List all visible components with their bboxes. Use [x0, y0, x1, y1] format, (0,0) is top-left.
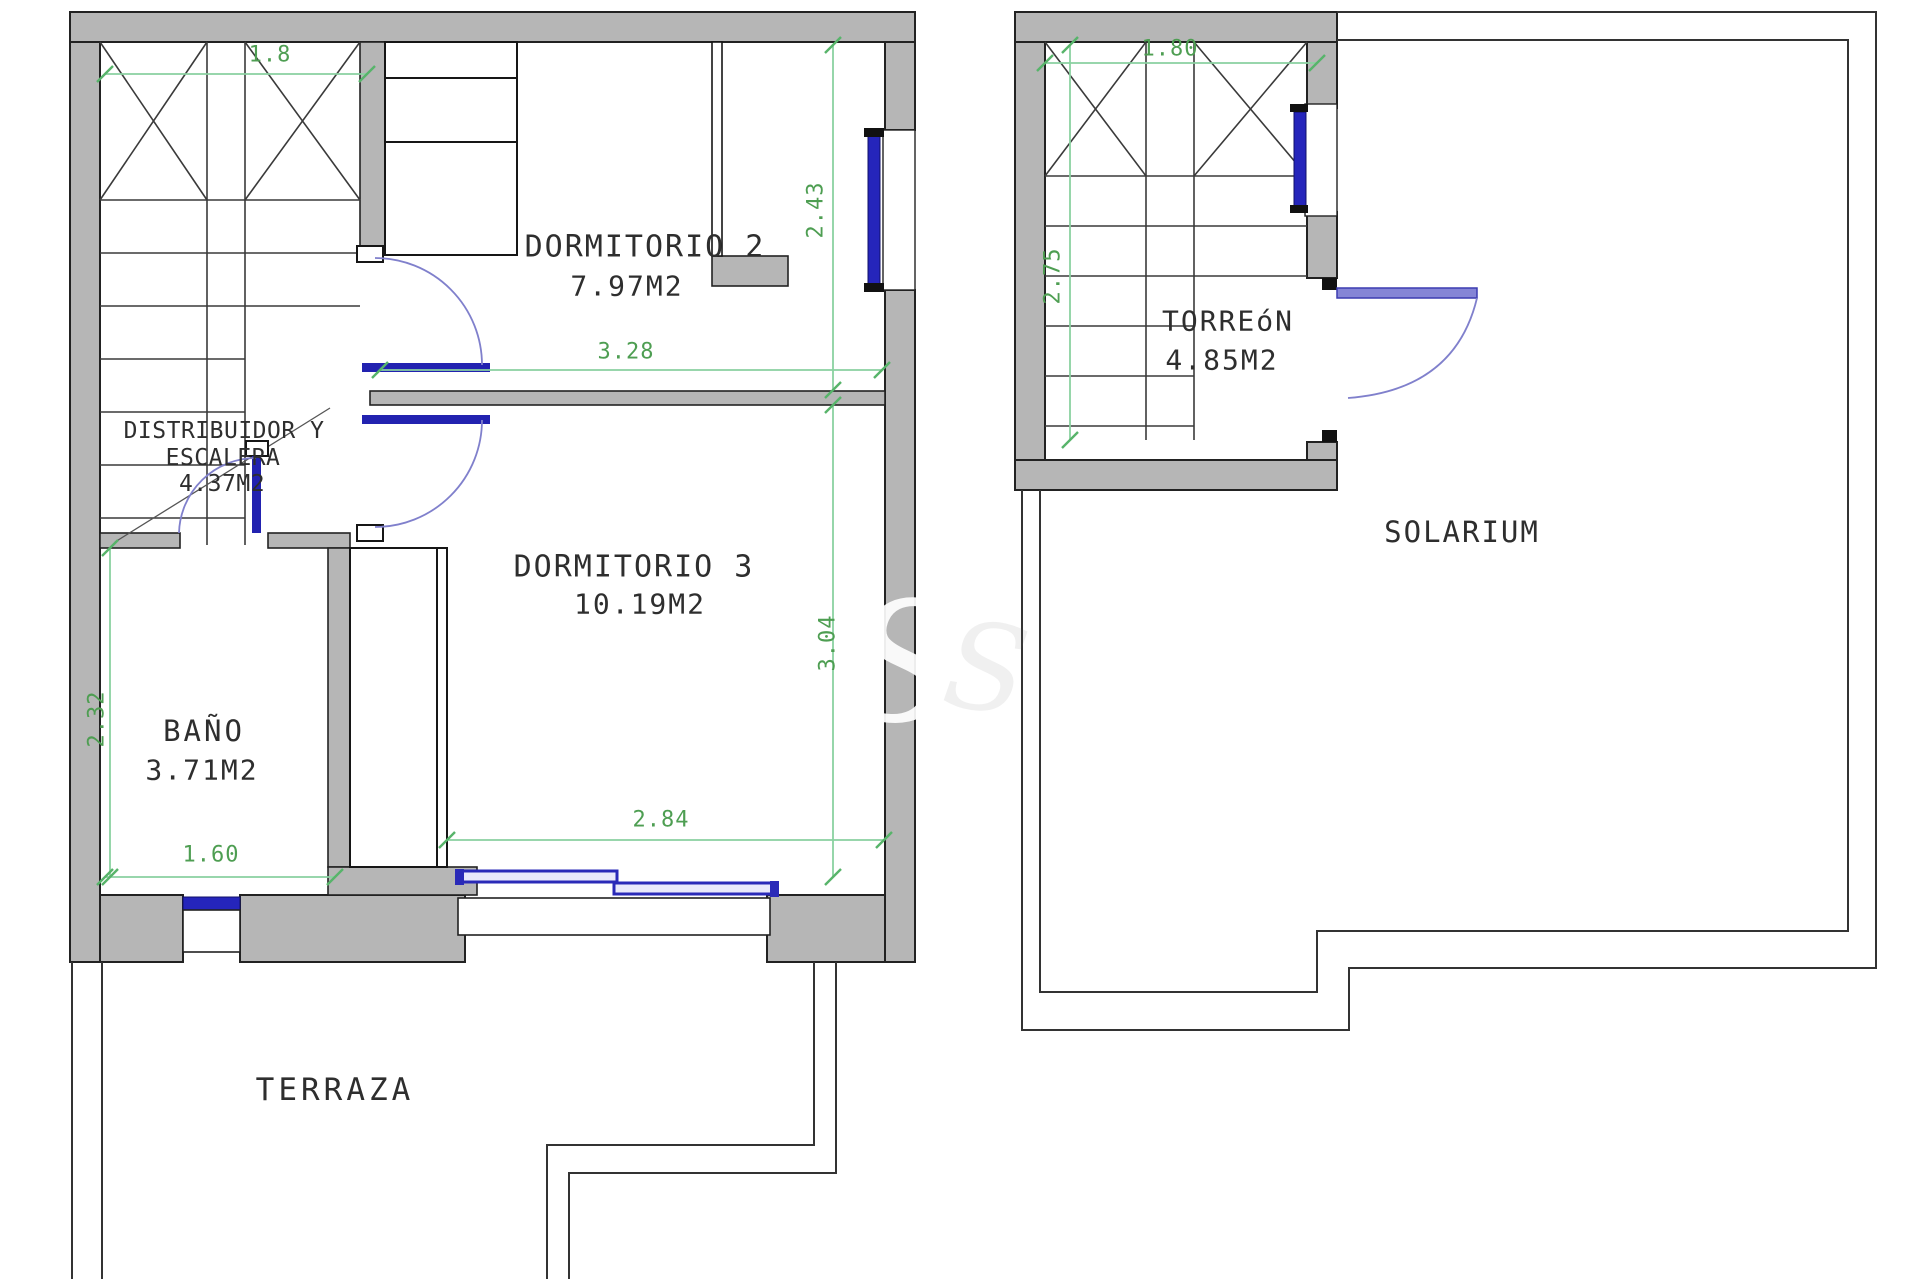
terraza-outline [72, 962, 836, 1279]
dim-value-stair-width-upper: 1.8 [249, 43, 292, 68]
staircase-roof [1045, 42, 1307, 440]
room-area-distribuidor: 4.37M2 [179, 471, 265, 497]
door-jamb [1322, 430, 1337, 442]
window-dorm3-slider-right [614, 883, 772, 894]
wall-bottom-right [767, 895, 885, 962]
door-arc [1348, 298, 1477, 398]
room-label-distribuidor-line1: DISTRIBUIDOR Y [124, 418, 325, 444]
wall-left [70, 42, 100, 962]
dim-value-stair-depth-roof: 2.75 [1041, 248, 1066, 305]
window-dorm3-jamb [770, 881, 779, 897]
room-label-bano: BAÑO [163, 714, 245, 748]
wall-wardrobe-base [328, 867, 477, 895]
wall-top [70, 12, 915, 42]
room-label-solarium: SOLARIUM [1384, 515, 1540, 549]
dim-value-bano-width: 1.60 [183, 843, 240, 868]
wall-right-upper [885, 42, 915, 130]
dim-value-dorm2-width: 3.28 [598, 340, 655, 365]
room-area-dormitorio2: 7.97M2 [570, 270, 683, 303]
wall-between-dorm2-dorm3 [370, 391, 885, 405]
window-opening [1305, 104, 1337, 216]
window-cap [1290, 205, 1308, 213]
wall-bottom-mid [240, 895, 465, 962]
room-area-torreon: 4.85M2 [1165, 344, 1278, 377]
window-glass [1294, 112, 1306, 206]
dim-value-dorm3-depth: 3.04 [816, 615, 841, 672]
terraza-right-inner [547, 962, 814, 1279]
wall-bottom [1015, 460, 1337, 490]
terraza-right-outer [569, 962, 836, 1279]
room-label-dormitorio2: DORMITORIO 2 [525, 230, 766, 265]
upper-floor-plan [70, 12, 915, 1279]
wall-bottom-left [100, 895, 183, 962]
dim-value-stair-width-roof: 1.80 [1142, 37, 1199, 62]
room-area-dormitorio3: 10.19M2 [574, 588, 706, 621]
room-label-dormitorio3: DORMITORIO 3 [514, 550, 755, 585]
wall-wardrobe [328, 548, 350, 867]
room-area-bano: 3.71M2 [145, 754, 258, 787]
wall-right-a [1307, 42, 1337, 108]
room-label-terraza: TERRAZA [256, 1072, 415, 1108]
wall-right-lower [885, 290, 915, 962]
wardrobe-box [350, 548, 447, 867]
window-dorm2-cap [864, 128, 884, 137]
door-leaf [1337, 288, 1477, 298]
room-label-distribuidor-line2: ESCALERA [166, 445, 281, 471]
window-dorm2-opening [883, 130, 915, 290]
dim-value-dorm2-depth: 2.43 [804, 182, 829, 239]
room-label-torreon: TORREóN [1162, 305, 1294, 338]
door-arc-dorm3 [375, 420, 482, 527]
dim-value-dorm3-width: 2.84 [633, 808, 690, 833]
torreon-door [1322, 278, 1477, 442]
window-bano-sill [183, 910, 240, 952]
partition-double-line [712, 42, 722, 256]
window-dorm3-sill [458, 898, 770, 935]
dim-value-bano-depth: 2.32 [85, 691, 110, 748]
window-dorm2-cap [864, 283, 884, 292]
door-jamb [1322, 278, 1337, 290]
floor-plan-canvas: DORMITORIO 2 7.97M2 DORMITORIO 3 10.19M2… [0, 0, 1920, 1280]
door-stop-dorm2 [357, 246, 383, 262]
wall-bano-top-b [268, 533, 350, 548]
window-bano-glass [183, 897, 240, 910]
window-dorm2-glass [868, 136, 880, 284]
closet-top [385, 42, 517, 255]
door-arc-dorm2 [375, 258, 482, 365]
window-cap [1290, 104, 1308, 112]
window-dorm3-jamb [455, 869, 464, 885]
torreon-window [1290, 104, 1337, 216]
closets [350, 42, 722, 867]
door-leaf-dorm3 [362, 415, 490, 424]
window-dorm3-slider-left [462, 871, 617, 882]
wall-right-b [1307, 212, 1337, 278]
